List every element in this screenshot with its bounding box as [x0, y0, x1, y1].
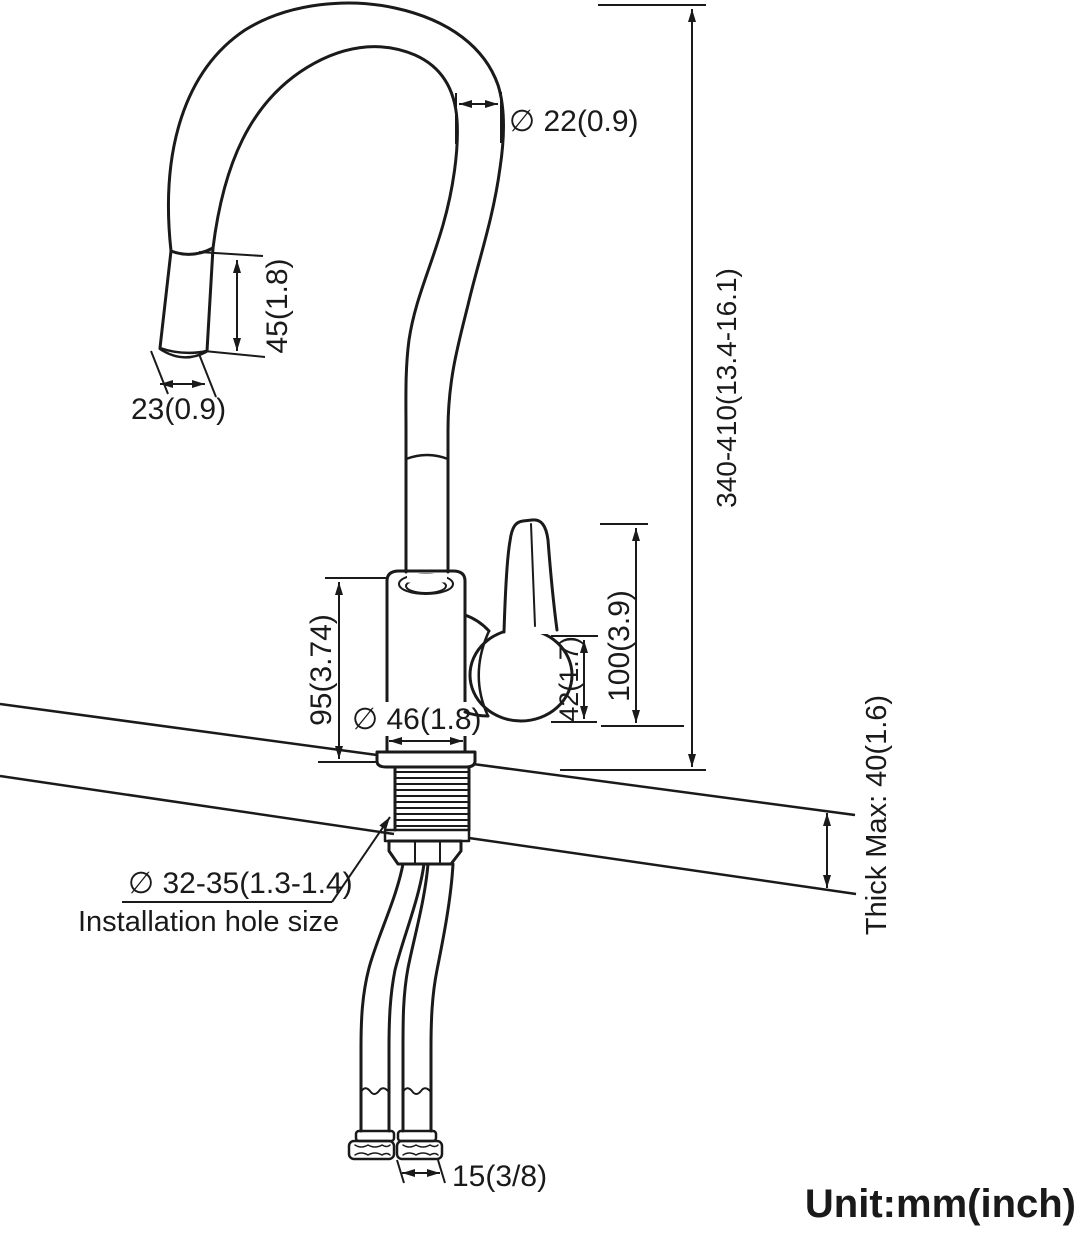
label-install-hole: ∅ 32-35(1.3-1.4)	[128, 867, 353, 900]
hose-break-squiggle-right	[403, 1088, 431, 1094]
spout	[160, 3, 504, 572]
hose-nut-knurl	[403, 1153, 438, 1155]
lock-ring	[385, 830, 469, 841]
supply-hoses	[349, 864, 453, 1159]
label-spout-diameter: ∅ 22(0.9)	[509, 105, 639, 138]
hose-left-edge2	[389, 864, 424, 1131]
hose-crimp-left	[356, 1131, 394, 1141]
label-base-diameter: ∅ 46(1.8)	[352, 703, 482, 736]
faucet-dimension-page: ∅ 22(0.9) 45(1.8) 23(0.9) 340-410(13.4-1…	[0, 0, 1080, 1229]
label-unit-note: Unit:mm(inch)	[805, 1182, 1076, 1226]
label-overall-height: 340-410(13.4-16.1)	[711, 268, 742, 508]
deck-top-edge-right	[473, 764, 855, 815]
hose-crimp-right	[398, 1131, 436, 1141]
hose-nut-left	[349, 1141, 394, 1159]
faucet-under-deck	[349, 571, 475, 1159]
spout-inner-curve	[213, 47, 457, 572]
label-spray-head-width: 23(0.9)	[131, 393, 226, 426]
dimension-labels: ∅ 22(0.9) 45(1.8) 23(0.9) 340-410(13.4-1…	[78, 105, 1076, 1226]
hose-nut-right	[397, 1141, 442, 1159]
deck-bottom-edge-right	[469, 838, 856, 894]
label-deck-thickness: Thick Max: 40(1.6)	[861, 695, 893, 935]
hose-nut-knurl	[403, 1145, 438, 1147]
label-handle-lever: 42(1.7)	[554, 636, 584, 722]
label-spray-head-length: 45(1.8)	[261, 258, 294, 353]
base-flange	[377, 752, 475, 767]
dim-spout-diameter	[456, 92, 501, 144]
hose-nut-knurl	[355, 1153, 390, 1155]
hose-nut-knurl	[355, 1145, 390, 1147]
label-body-height: 95(3.74)	[305, 614, 338, 726]
spray-head	[160, 248, 213, 357]
spray-head-left	[160, 251, 171, 348]
dim-supply-connector	[397, 1160, 445, 1183]
label-install-hole-note: Installation hole size	[78, 906, 339, 938]
handle-neck-top	[465, 615, 489, 631]
spout-outer-curve	[168, 3, 503, 572]
mounting-nut-facets	[415, 841, 440, 864]
deck-bottom-edge-left	[0, 776, 394, 834]
shank-threads	[396, 772, 468, 826]
mounting-nut	[389, 841, 461, 864]
spout-seam	[406, 455, 448, 459]
label-supply-connector: 15(3/8)	[452, 1160, 547, 1193]
label-handle-height: 100(3.9)	[603, 590, 636, 702]
hose-left-edge1	[361, 864, 403, 1131]
hose-break-squiggle-left	[361, 1088, 389, 1094]
spray-head-right	[207, 248, 213, 351]
spout-socket-mask	[407, 574, 447, 583]
hose-right-edge2	[431, 864, 453, 1131]
drawing-canvas: ∅ 22(0.9) 45(1.8) 23(0.9) 340-410(13.4-1…	[0, 0, 1080, 1229]
